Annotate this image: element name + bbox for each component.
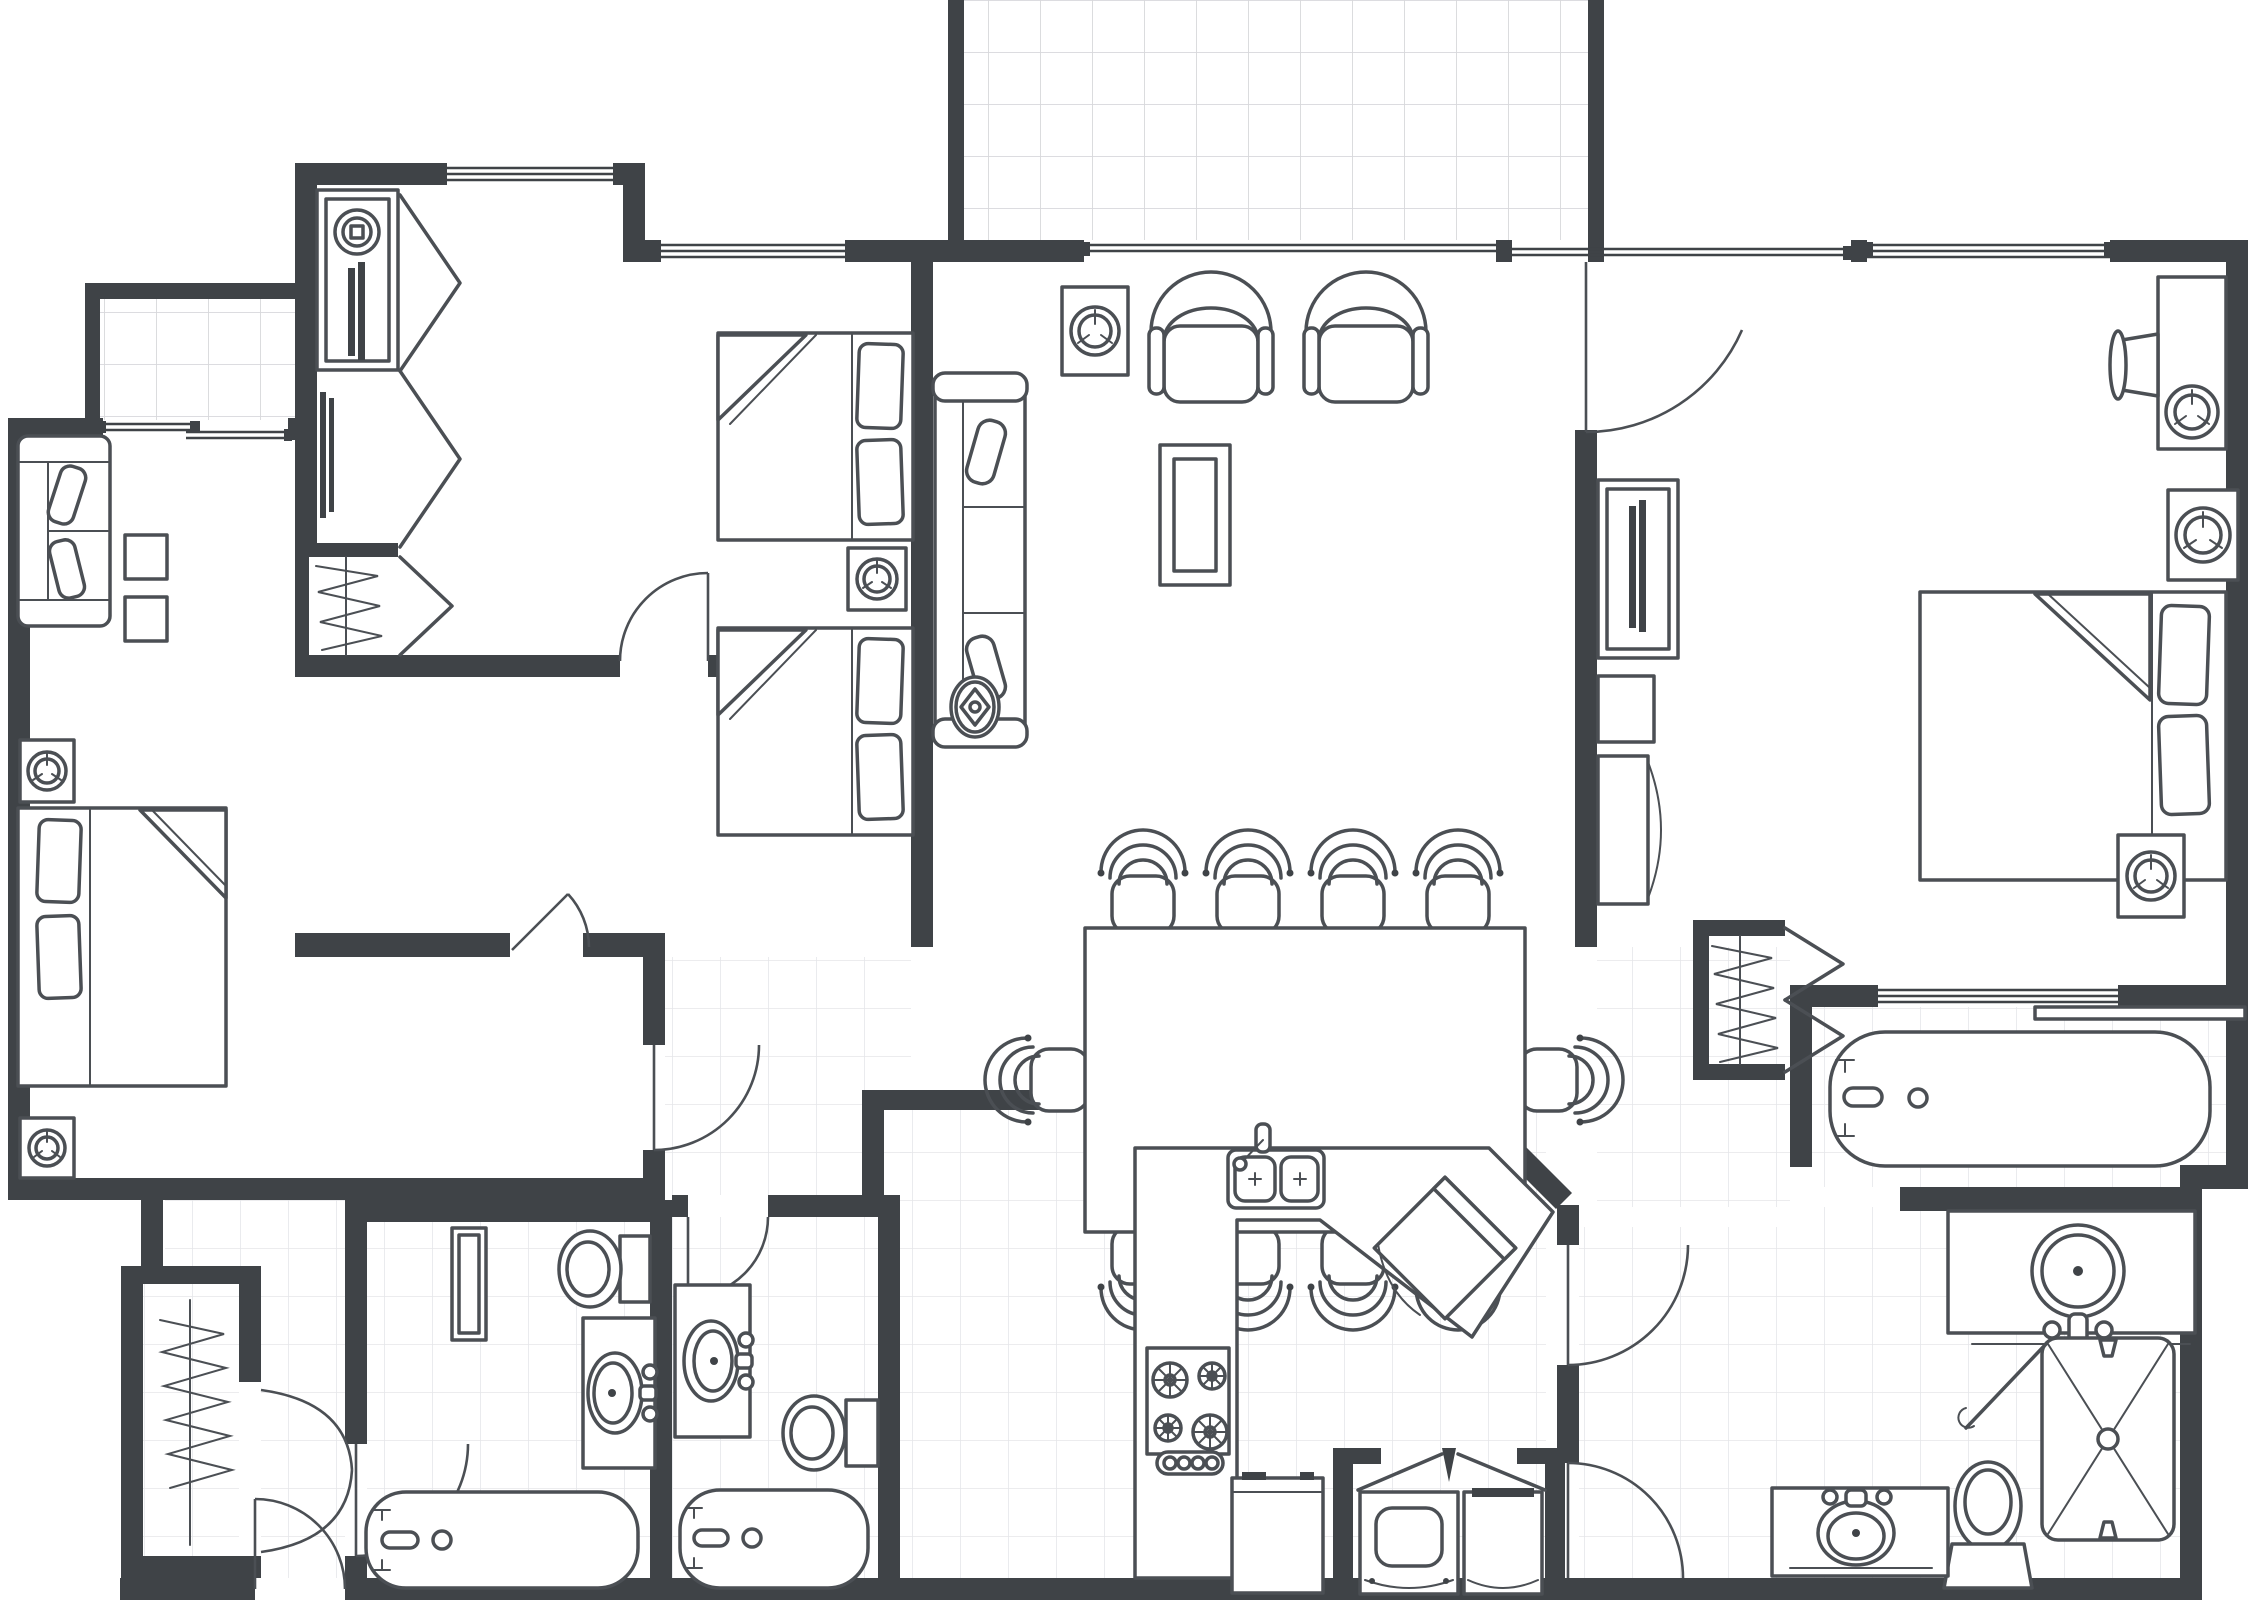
bedroom-1-dressing-door[interactable] (512, 894, 589, 950)
speaker (20, 1118, 74, 1178)
dining-chair (1308, 830, 1399, 934)
balcony-sliding-door[interactable] (98, 421, 292, 441)
tub-ledge (2035, 1007, 2245, 1019)
bathtub (680, 1490, 868, 1588)
toilet (559, 1231, 650, 1307)
bathtub (366, 1492, 638, 1588)
linen-shelf (452, 1228, 486, 1340)
display-niche (1598, 676, 1654, 742)
dryer (1464, 1488, 1542, 1594)
living-room (933, 272, 1428, 747)
double-bed (18, 808, 226, 1086)
master-bedroom-sliding-door[interactable] (1863, 242, 2114, 257)
toilet (783, 1396, 878, 1470)
speaker (2118, 835, 2184, 917)
dining-chair (1519, 1035, 1623, 1126)
floor-plan-canvas (0, 0, 2268, 1618)
bedroom-2 (316, 190, 913, 835)
cooktop (1147, 1348, 1229, 1474)
dining-chair (1413, 830, 1504, 934)
refrigerator (1232, 1472, 1323, 1593)
bedroom-2-window-2 (661, 240, 845, 262)
burner (1155, 1415, 1181, 1441)
master-bedroom-door[interactable] (1586, 262, 1742, 432)
master-bath-window (1878, 985, 2118, 1007)
dining-chair (1203, 830, 1294, 934)
double-bed-a (718, 333, 913, 540)
foyer-strip-floor (261, 1288, 345, 1578)
terrace-floor (964, 0, 1588, 240)
dresser-with-lamp (2110, 277, 2226, 449)
living-room-sliding-door[interactable] (1080, 242, 1853, 260)
mirror-panel (320, 392, 334, 518)
bedroom-1 (18, 436, 226, 1178)
side-table (125, 535, 167, 579)
small-balcony-floor (100, 299, 297, 420)
coffee-table (1160, 445, 1230, 585)
speaker (2168, 490, 2238, 580)
bedroom-2-door[interactable] (620, 573, 708, 661)
bathtub (1830, 1032, 2210, 1166)
armchair (1304, 272, 1428, 402)
speaker (848, 548, 906, 610)
dining-chair (1098, 830, 1189, 934)
floor-plan-drawing (0, 0, 2268, 1618)
vanity-sink (675, 1285, 753, 1437)
vanity-oval-sink (1772, 1488, 1948, 1576)
armchair (1149, 272, 1273, 402)
hanging-closet (316, 557, 452, 655)
armoire-bifold-doors[interactable] (400, 195, 460, 547)
curved-cabinet (1598, 756, 1661, 904)
vanity-round-sink (1948, 1211, 2195, 1344)
burner (1153, 1363, 1187, 1397)
tv-armoire (317, 190, 398, 370)
bedroom-2-window (447, 163, 613, 185)
burner (1199, 1363, 1225, 1389)
side-table (125, 597, 167, 641)
speaker (1062, 287, 1128, 375)
loveseat-sofa (18, 436, 110, 626)
ceiling-fan (951, 677, 999, 737)
closet-bifold-door[interactable] (400, 557, 452, 655)
double-bed-b (718, 628, 913, 835)
vanity-sink (583, 1318, 657, 1468)
master-bedroom (1598, 277, 2238, 917)
washer (1360, 1492, 1458, 1594)
tv-armoire (1598, 480, 1678, 658)
speaker (20, 740, 74, 802)
master-hall-lower-floor (1579, 1227, 1790, 1578)
burner (1193, 1415, 1227, 1449)
